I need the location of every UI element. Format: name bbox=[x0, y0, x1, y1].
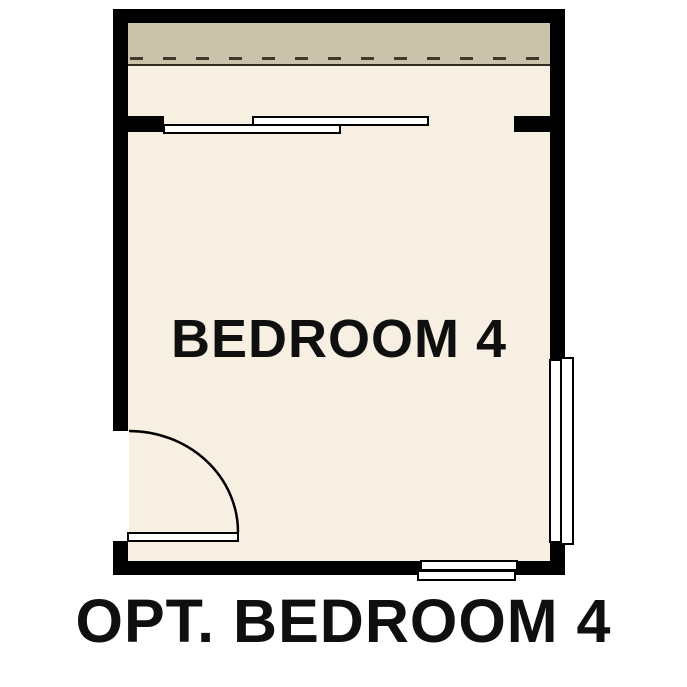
floorplan-canvas: BEDROOM 4 OPT. BEDROOM 4 bbox=[0, 0, 687, 687]
top-wall-stub-right bbox=[514, 116, 550, 132]
top-wall-stub-left bbox=[128, 116, 164, 132]
right-window-inner-pane bbox=[549, 359, 562, 543]
sliding-window-pane-lower bbox=[163, 124, 341, 134]
right-window-outer-pane bbox=[560, 357, 574, 545]
room-label: BEDROOM 4 bbox=[128, 312, 550, 366]
door-opening bbox=[112, 431, 129, 541]
room-floor bbox=[128, 23, 550, 561]
overhead-dashed-line bbox=[130, 57, 550, 60]
bottom-window-lower-pane bbox=[417, 570, 516, 581]
roof-overhang-strip bbox=[128, 23, 550, 66]
plan-caption: OPT. BEDROOM 4 bbox=[0, 591, 687, 652]
door-leaf bbox=[127, 532, 239, 542]
